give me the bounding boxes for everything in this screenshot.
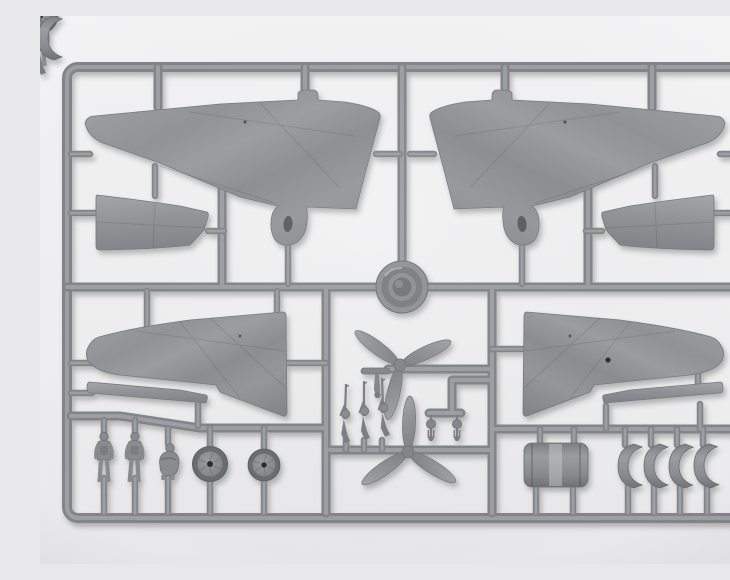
sprue-scene: [40, 16, 730, 564]
sprue-photo: [40, 16, 730, 564]
photo-vignette: [40, 16, 730, 564]
